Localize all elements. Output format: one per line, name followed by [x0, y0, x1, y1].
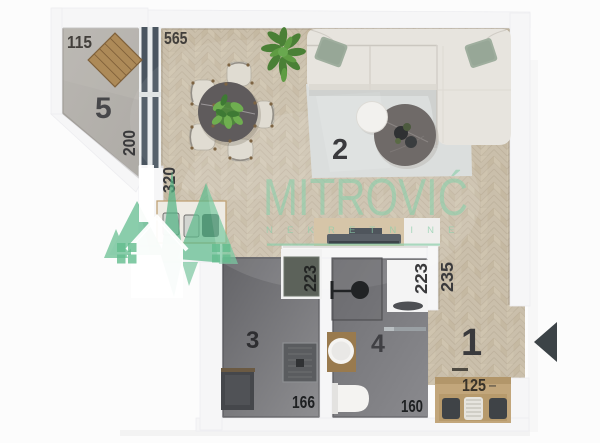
svg-text:1: 1 — [461, 322, 482, 364]
svg-text:565: 565 — [164, 28, 188, 48]
svg-text:125: 125 — [462, 375, 486, 395]
svg-text:235: 235 — [437, 262, 457, 292]
svg-text:160: 160 — [401, 396, 423, 416]
svg-text:223: 223 — [411, 263, 431, 294]
svg-text:3: 3 — [246, 327, 259, 354]
svg-text:320: 320 — [159, 167, 179, 193]
svg-text:4: 4 — [371, 330, 385, 358]
svg-text:MITROVIĆ: MITROVIĆ — [263, 169, 468, 227]
svg-text:2: 2 — [332, 134, 348, 166]
svg-text:200: 200 — [119, 130, 139, 156]
svg-text:5: 5 — [95, 92, 112, 125]
svg-text:166: 166 — [292, 392, 315, 412]
svg-text:223: 223 — [300, 265, 320, 292]
svg-text:NEKRETNINE: NEKRETNINE — [266, 225, 466, 236]
svg-text:115: 115 — [67, 32, 92, 52]
